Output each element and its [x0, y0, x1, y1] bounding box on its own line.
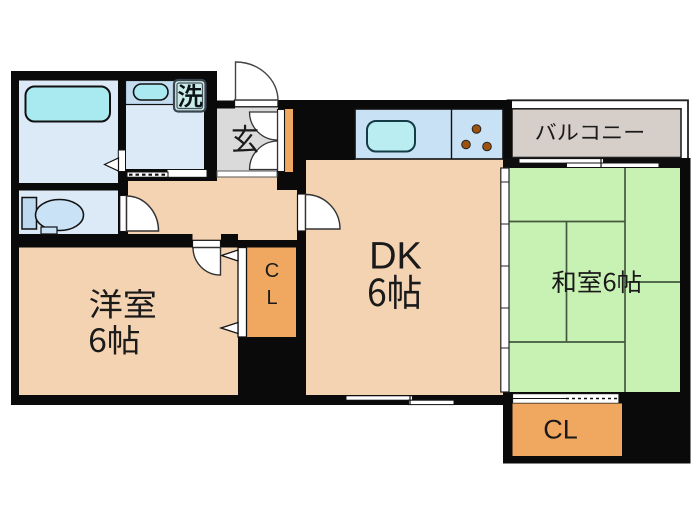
- svg-text:L: L: [266, 287, 277, 309]
- svg-text:C: C: [265, 260, 279, 282]
- svg-text:CL: CL: [543, 415, 578, 445]
- svg-text:DK: DK: [369, 236, 422, 278]
